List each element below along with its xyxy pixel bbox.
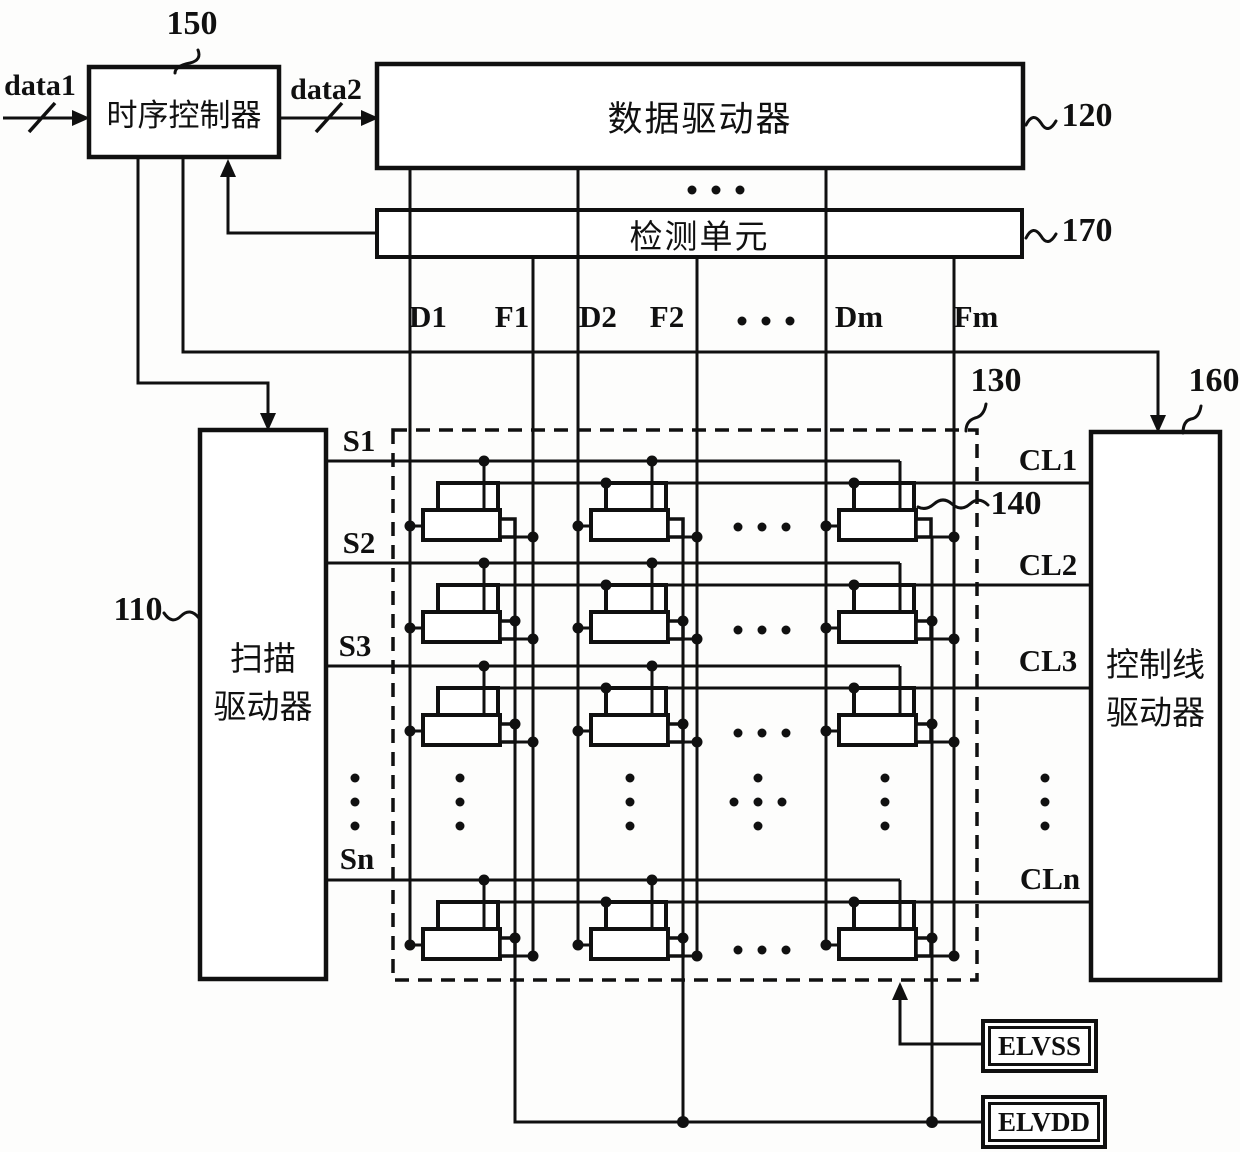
line-label-cl3: CL3 [1016,645,1080,678]
data-driver-label: 数据驱动器 [377,64,1023,168]
pixel-cell [591,483,683,540]
line-label-s1: S1 [330,425,388,458]
pixel-cell [839,688,931,745]
pixel-cells [423,483,931,959]
patent-figure: 时序控制器 数据驱动器 检测单元 扫描 驱动器 控制线 驱动器 150 120 … [0,0,1240,1152]
line-label-cl1: CL1 [1016,444,1080,477]
elvss-box: ELVSS [981,1019,1098,1073]
ref-110: 110 [108,592,168,628]
pixel-cell [591,688,683,745]
pixel-cell [839,585,931,642]
line-label-s2: S2 [330,527,388,560]
line-label-d2: D2 [572,301,624,334]
data1-label: data1 [0,70,80,102]
elvdd-box: ELVDD [981,1095,1107,1149]
ref-170: 170 [1056,213,1118,249]
scan-driver-label: 扫描 驱动器 [200,430,326,979]
timing-controller-label: 时序控制器 [89,67,279,157]
pixel-cell [423,688,515,745]
pixel-cell [423,902,515,959]
line-label-fm: Fm [948,301,1004,334]
detection-unit-label: 检测单元 [377,210,1022,257]
pixel-cell [839,902,931,959]
elvdd-label: ELVDD [988,1102,1100,1142]
line-label-cl2: CL2 [1016,549,1080,582]
pixel-cell [591,902,683,959]
line-label-cln: CLn [1018,863,1082,896]
line-label-dm: Dm [832,301,886,334]
scan-driver-label-line1: 扫描 [230,637,296,685]
line-label-f1: F1 [488,301,536,334]
control-line-driver-label-line2: 驱动器 [1106,691,1205,739]
ref-130: 130 [966,363,1026,399]
pixel-cell [591,585,683,642]
line-label-sn: Sn [328,843,386,876]
scan-driver-label-line2: 驱动器 [214,685,313,733]
control-line-driver-label-line1: 控制线 [1106,643,1205,691]
ref-140: 140 [986,486,1046,522]
line-label-s3: S3 [326,630,384,663]
line-label-d1: D1 [404,301,452,334]
ellipsis-dots [351,186,1050,955]
data2-label: data2 [284,74,368,106]
pixel-cell [423,585,515,642]
elvss-label: ELVSS [988,1026,1091,1066]
pixel-cell [423,483,515,540]
ref-160: 160 [1184,363,1240,399]
line-label-f2: F2 [641,301,693,334]
ref-150: 150 [162,6,222,42]
pixel-cell [839,483,931,540]
control-line-driver-label: 控制线 驱动器 [1091,432,1220,980]
ref-120: 120 [1056,98,1118,134]
